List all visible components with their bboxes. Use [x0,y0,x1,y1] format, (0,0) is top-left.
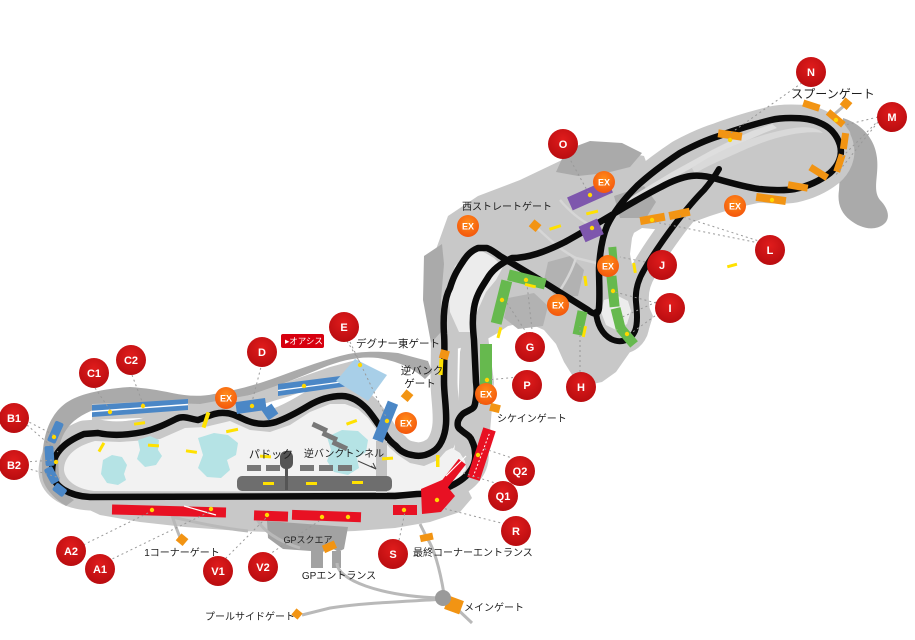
svg-text:デグナー東ゲート: デグナー東ゲート [356,337,440,350]
svg-text:EX: EX [552,301,564,311]
svg-text:EX: EX [480,390,492,400]
svg-text:C2: C2 [124,355,138,367]
svg-text:S: S [389,549,396,561]
svg-text:D: D [258,347,266,359]
svg-text:M: M [887,112,896,124]
svg-text:G: G [526,342,535,354]
svg-text:L: L [767,245,774,257]
svg-text:EX: EX [462,222,474,232]
svg-text:N: N [807,67,815,79]
svg-text:O: O [559,139,568,151]
svg-text:最終コーナーエントランス: 最終コーナーエントランス [413,546,533,559]
svg-text:R: R [512,526,520,538]
svg-text:スプーンゲート: スプーンゲート [791,87,874,101]
svg-text:シケインゲート: シケインゲート [497,413,567,425]
svg-text:B1: B1 [7,413,21,425]
svg-text:EX: EX [400,419,412,429]
svg-text:P: P [523,380,530,392]
svg-text:H: H [577,382,585,394]
svg-text:Q1: Q1 [496,491,511,503]
svg-text:I: I [668,303,671,315]
svg-text:Q2: Q2 [513,466,528,478]
svg-text:EX: EX [598,178,610,188]
svg-text:逆バンク: 逆バンク [401,364,444,377]
svg-text:ゲート: ゲート [404,378,436,390]
svg-text:B2: B2 [7,460,21,472]
svg-text:1コーナーゲート: 1コーナーゲート [144,547,220,559]
svg-text:EX: EX [602,262,614,272]
svg-text:パドック: パドック [249,448,293,461]
svg-text:EX: EX [220,394,232,404]
svg-text:A1: A1 [93,564,107,576]
svg-text:V1: V1 [211,566,224,578]
svg-text:▸オアシス: ▸オアシス [285,336,323,346]
svg-text:メインゲート: メインゲート [464,602,524,614]
svg-text:逆バンクトンネル: 逆バンクトンネル [304,447,384,460]
svg-text:J: J [659,260,665,272]
svg-text:A2: A2 [64,546,78,558]
svg-text:GPエントランス: GPエントランス [302,570,376,582]
svg-text:プールサイドゲート: プールサイドゲート [205,611,295,623]
svg-text:西ストレートゲート: 西ストレートゲート [462,201,552,213]
svg-text:EX: EX [729,202,741,212]
svg-text:E: E [340,322,347,334]
svg-text:GPスクエア: GPスクエア [283,535,332,545]
svg-text:C1: C1 [87,368,101,380]
svg-text:V2: V2 [256,562,269,574]
